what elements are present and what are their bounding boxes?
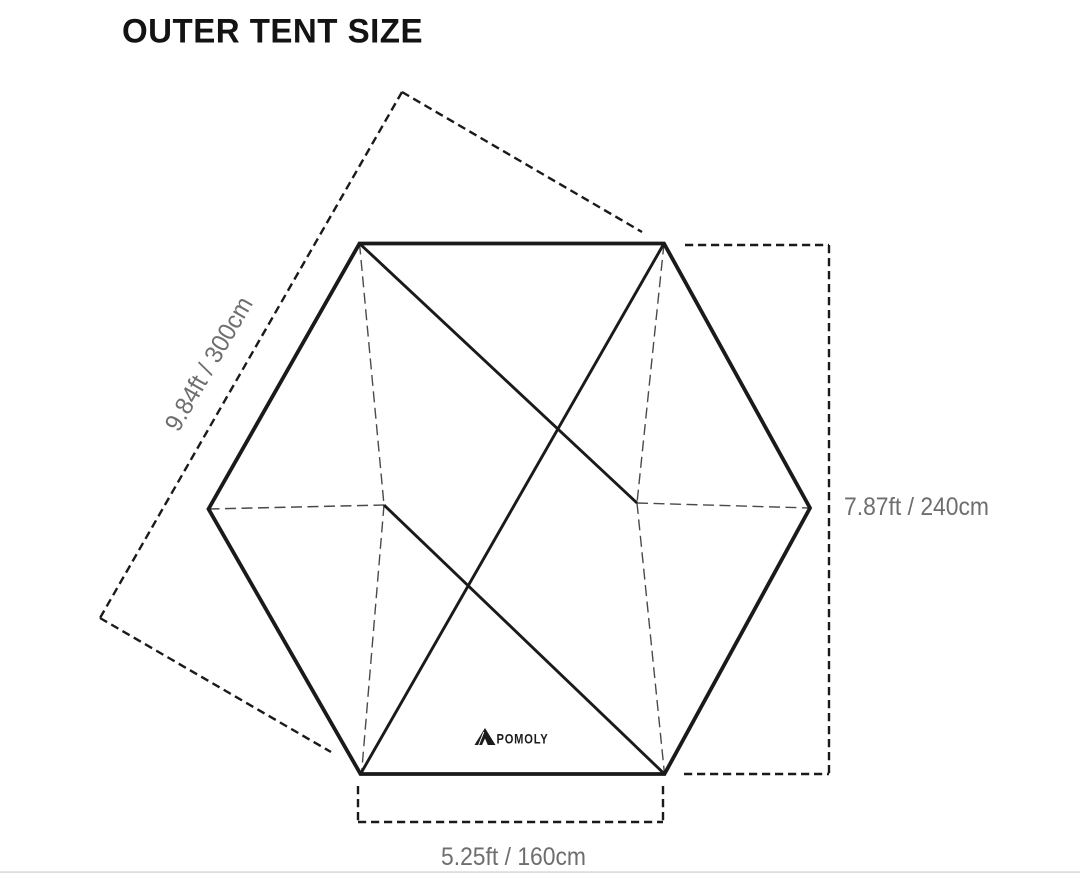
svg-text:POMOLY: POMOLY	[497, 731, 549, 747]
svg-text:5.25ft / 160cm: 5.25ft / 160cm	[441, 843, 586, 871]
svg-text:OUTER TENT SIZE: OUTER TENT SIZE	[122, 13, 423, 51]
svg-text:7.87ft / 240cm: 7.87ft / 240cm	[844, 493, 989, 521]
